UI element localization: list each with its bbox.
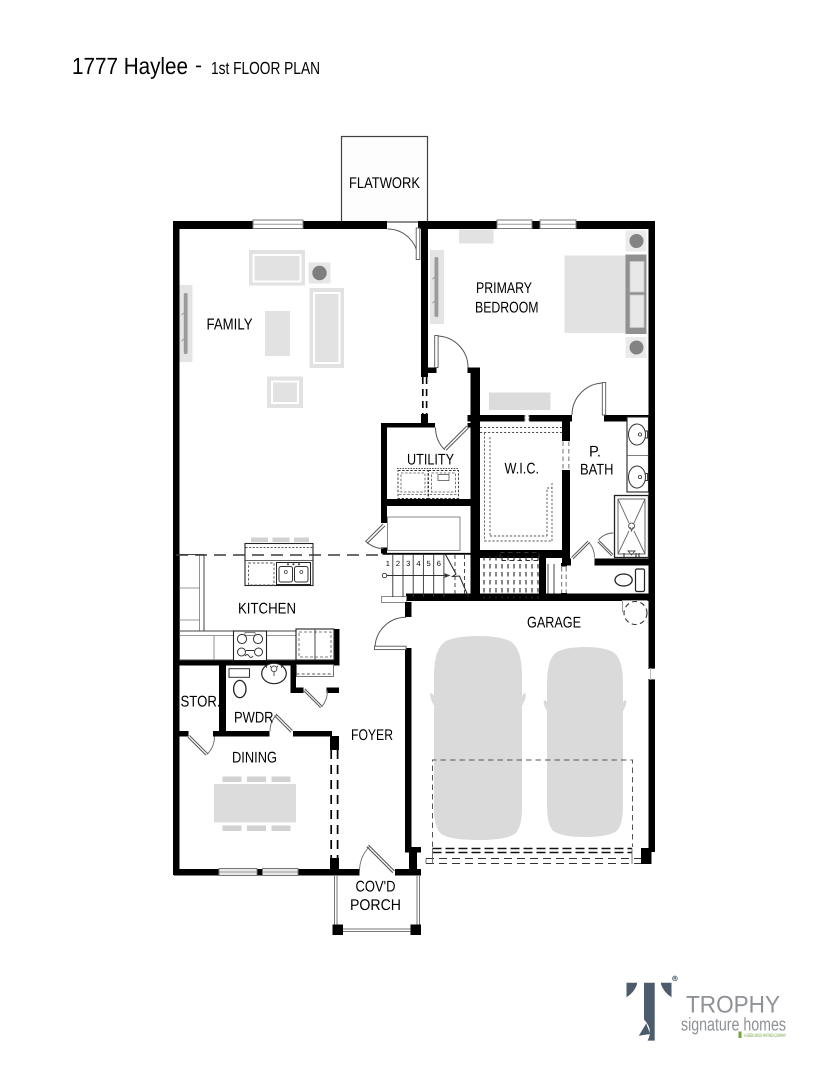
svg-text:A GREEN BRICK PARTNER COMPANY: A GREEN BRICK PARTNER COMPANY	[744, 1033, 786, 1039]
svg-text:STOR.: STOR.	[181, 694, 221, 711]
svg-text:KITCHEN: KITCHEN	[238, 601, 296, 618]
svg-text:W.I.C.: W.I.C.	[505, 461, 540, 478]
svg-text:-: -	[195, 54, 202, 77]
svg-text:4: 4	[416, 559, 420, 568]
svg-text:1777 Haylee: 1777 Haylee	[72, 53, 188, 79]
svg-text:FAMILY: FAMILY	[207, 317, 253, 334]
svg-text:UTILITY: UTILITY	[407, 452, 454, 469]
svg-text:FLATWORK: FLATWORK	[349, 175, 421, 192]
svg-text:PORCH: PORCH	[350, 897, 401, 914]
svg-text:signature homes: signature homes	[681, 1014, 786, 1035]
svg-text:DINING: DINING	[232, 750, 277, 767]
svg-text:BATH: BATH	[580, 462, 614, 479]
svg-text:3: 3	[406, 559, 410, 568]
svg-text:PRIMARY: PRIMARY	[476, 280, 532, 297]
svg-text:1: 1	[386, 559, 390, 568]
svg-text:P.: P.	[589, 444, 601, 461]
svg-text:BEDROOM: BEDROOM	[475, 300, 539, 317]
svg-text:PWDR: PWDR	[234, 710, 274, 727]
svg-text:5: 5	[427, 559, 431, 568]
svg-text:FOYER: FOYER	[351, 727, 393, 744]
svg-text:6: 6	[437, 559, 441, 568]
svg-text:GARAGE: GARAGE	[527, 615, 581, 632]
svg-text:COV'D: COV'D	[356, 879, 396, 896]
svg-text:2: 2	[396, 559, 400, 568]
svg-text:1st FLOOR PLAN: 1st FLOOR PLAN	[211, 58, 320, 78]
